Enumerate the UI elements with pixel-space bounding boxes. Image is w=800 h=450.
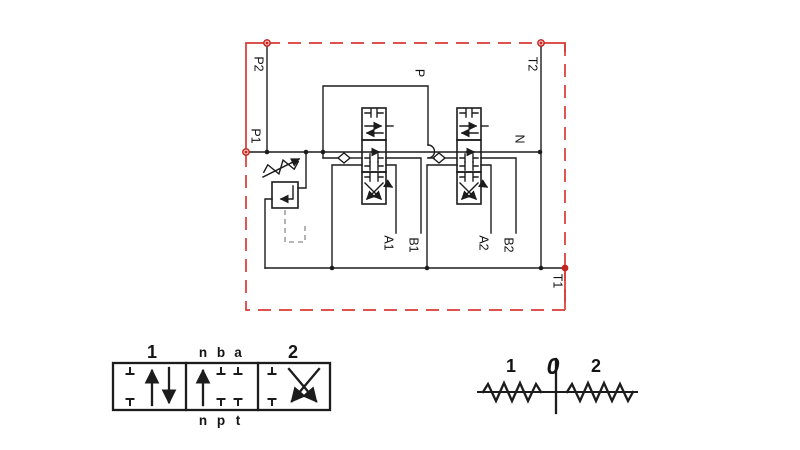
relief-outlet-line — [265, 199, 272, 268]
blocked-port-marks — [126, 367, 135, 406]
port-marker-t1 — [562, 265, 569, 272]
port-label-p2: P2 — [252, 56, 266, 71]
spool-port-label-p: p — [217, 413, 225, 428]
port-label-n: N — [513, 134, 527, 143]
relief-internal-arrow — [281, 186, 293, 199]
hydraulic-schematic-page: P2 T2 P1 T1 N P A1 B1 A2 B2 — [0, 0, 800, 450]
cross-flow-arrow — [289, 369, 316, 401]
blocked-port-marks — [217, 367, 243, 374]
spool-port-label-t: t — [236, 413, 241, 428]
spool-pos-label-1: 1 — [147, 342, 157, 362]
relief-valve-box — [272, 182, 298, 208]
parallel-feed-gallery — [323, 86, 428, 152]
port-label-a1: A1 — [382, 235, 396, 250]
valve-body-boundary — [246, 43, 565, 310]
lever-centring-diagram: 1 0 2 — [477, 353, 638, 413]
port-labels: P2 T2 P1 T1 N P A1 B1 A2 B2 — [249, 56, 565, 288]
cross-flow-arrow — [292, 369, 319, 401]
relief-inlet-line — [298, 152, 306, 188]
port-label-a2: A2 — [477, 235, 491, 250]
relief-valve — [262, 152, 306, 268]
spool-pos-label-2: 2 — [288, 342, 298, 362]
port-label-b1: B1 — [407, 237, 421, 252]
port-label-p1: P1 — [249, 128, 263, 143]
hydraulic-schematic-svg: P2 T2 P1 T1 N P A1 B1 A2 B2 — [0, 0, 800, 450]
lever-label-0: 0 — [547, 353, 560, 379]
lever-label-1: 1 — [506, 356, 516, 376]
pilot-drain-line — [285, 210, 305, 242]
spool-port-label-b: b — [217, 345, 225, 360]
circuit-lines — [246, 43, 563, 270]
spool-port-label-n-bot: n — [199, 413, 207, 428]
port-label-p: P — [413, 69, 427, 77]
blocked-port-marks — [217, 399, 243, 406]
blocked-port-marks — [268, 367, 277, 406]
port-markers — [243, 40, 569, 272]
spool-position-diagram: 1 n b a 2 n p t — [113, 342, 330, 428]
lever-label-2: 2 — [591, 356, 601, 376]
port-label-t2: T2 — [526, 57, 540, 72]
port-label-b2: B2 — [502, 237, 516, 252]
spring-right-icon — [567, 383, 633, 401]
spool-port-label-n-top: n — [199, 345, 207, 360]
spool-port-label-a: a — [234, 345, 242, 360]
port-label-t1: T1 — [551, 274, 565, 289]
